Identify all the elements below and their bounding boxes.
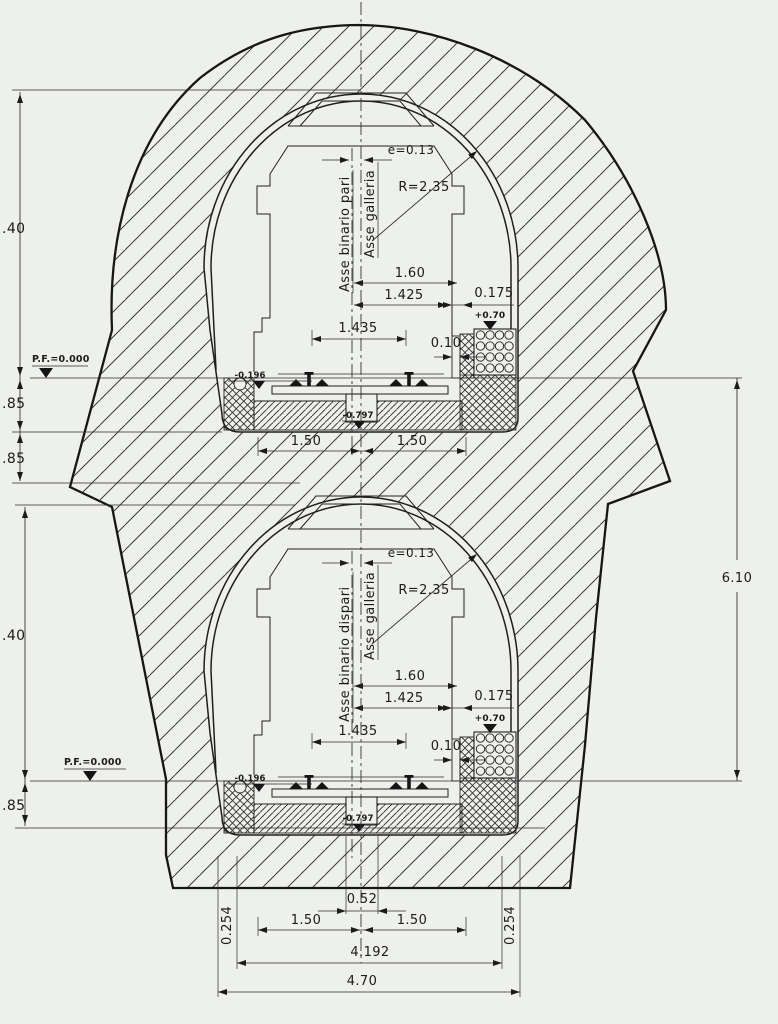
dim-010: 0.10 [431, 739, 462, 754]
dim-052: 0.52 [347, 892, 378, 907]
level-rail: -0.196 [234, 371, 265, 381]
dim-0254: 0.254 [220, 906, 235, 945]
dim-470: 4.70 [347, 974, 378, 989]
dim-085: .85 [2, 798, 25, 814]
dim-040: .40 [2, 221, 25, 237]
dim-150: 1.50 [397, 434, 428, 449]
dim-0254: 0.254 [503, 906, 518, 945]
pf-datum-label: P.F.=0.000 [64, 757, 122, 768]
dim-085: .85 [2, 451, 25, 467]
dim-1425: 1.425 [384, 288, 423, 303]
dim-0175: 0.175 [474, 689, 513, 704]
drawing-page: e=0.13 R=2.35 1.60 1.425 0.175 +0.70 1.4… [0, 0, 778, 1024]
level-curb: +0.70 [475, 714, 506, 724]
dim-radius: R=2.35 [398, 180, 449, 195]
dim-1425: 1.425 [384, 691, 423, 706]
axis-track-label: Asse binario dispari [338, 587, 353, 723]
dim-150: 1.50 [397, 913, 428, 928]
dim-085: .85 [2, 396, 25, 412]
dim-160: 1.60 [395, 266, 426, 281]
tunnel-cross-section-drawing: e=0.13 R=2.35 1.60 1.425 0.175 +0.70 1.4… [0, 0, 778, 1024]
level-invert: -0.797 [342, 814, 373, 824]
dim-610: 6.10 [722, 571, 753, 586]
pf-datum-label: P.F.=0.000 [32, 354, 90, 365]
level-curb: +0.70 [475, 311, 506, 321]
dim-eccentricity: e=0.13 [388, 546, 435, 560]
dim-4192: 4.192 [350, 945, 389, 960]
dim-040: .40 [2, 628, 25, 644]
dim-radius: R=2.35 [398, 583, 449, 598]
dim-1435: 1.435 [338, 724, 377, 739]
dim-1435: 1.435 [338, 321, 377, 336]
dim-0175: 0.175 [474, 286, 513, 301]
dim-150: 1.50 [291, 913, 322, 928]
dim-010: 0.10 [431, 336, 462, 351]
dim-eccentricity: e=0.13 [388, 143, 435, 157]
level-rail: -0.196 [234, 774, 265, 784]
dim-150: 1.50 [291, 434, 322, 449]
level-invert: -0.797 [342, 411, 373, 421]
dim-160: 1.60 [395, 669, 426, 684]
axis-tunnel-label: Asse galleria [363, 170, 378, 258]
axis-tunnel-label: Asse galleria [363, 572, 378, 660]
axis-track-label: Asse binario pari [338, 176, 353, 292]
